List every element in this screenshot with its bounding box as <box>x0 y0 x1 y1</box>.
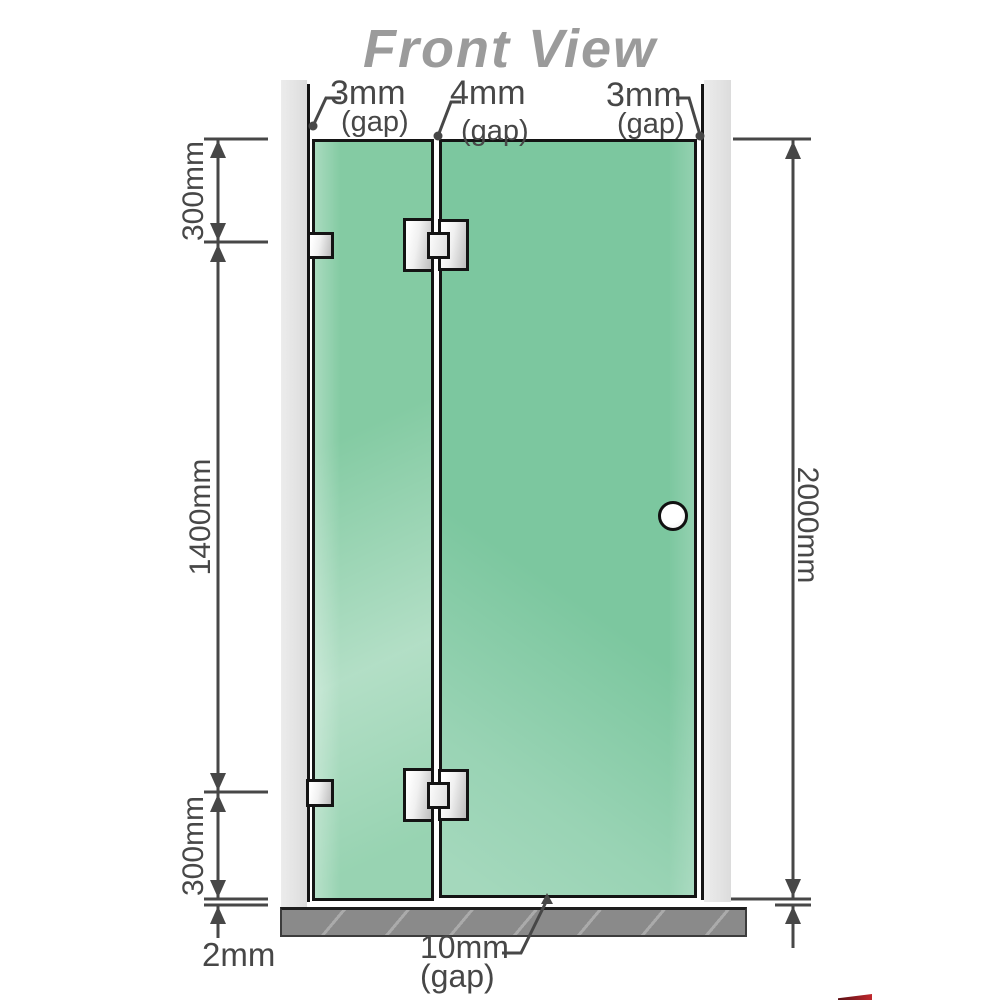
right-wall-edge-line <box>701 84 704 900</box>
arrow-up-2mm-right <box>785 906 801 924</box>
right-wall-post <box>704 80 731 902</box>
door-knob <box>658 501 688 531</box>
dim-label-2000: 2000mm <box>790 440 824 610</box>
dim-label-300-top: 300mm <box>177 121 211 261</box>
hinge-bottom-knuckle <box>427 782 450 809</box>
logo-sliver <box>838 994 872 1000</box>
dim-label-300-bottom: 300mm <box>177 776 211 916</box>
arrow-up-2mm-left <box>210 906 226 924</box>
dim-label-2mm: 2mm <box>202 936 275 974</box>
wall-bracket-top <box>307 232 334 259</box>
gap-label-left-suffix: (gap) <box>341 109 409 135</box>
arrow-up-1400 <box>210 244 226 262</box>
gap-label-right-suffix: (gap) <box>617 111 685 137</box>
dim-label-1400: 1400mm <box>184 437 218 597</box>
wall-bracket-bottom <box>306 779 334 807</box>
hinge-top-knuckle <box>427 232 450 259</box>
gap-label-left-value: 3mm <box>330 78 409 109</box>
arrow-down-300bottom <box>210 880 226 898</box>
arrow-up-2000 <box>785 141 801 159</box>
floor-bar <box>280 907 747 937</box>
gap-label-middle-value: 4mm <box>450 78 529 109</box>
gap-label-middle-suffix: (gap) <box>461 118 529 144</box>
gap-label-right: 3mm (gap) <box>606 80 685 137</box>
arrow-down-300top <box>210 223 226 241</box>
page-title: Front View <box>300 18 720 80</box>
arrow-down-1400 <box>210 773 226 791</box>
gap-label-left: 3mm (gap) <box>330 78 409 135</box>
dim-label-10mm-suffix: (gap) <box>420 962 509 991</box>
left-wall-post <box>281 80 307 907</box>
dim-label-10mm: 10mm (gap) <box>420 933 509 991</box>
front-view-diagram: Front View <box>0 0 1000 1000</box>
gap-label-right-value: 3mm <box>606 80 685 111</box>
gap-label-middle: 4mm (gap) <box>450 78 529 144</box>
arrow-up-300bottom <box>210 794 226 812</box>
arrow-down-2000 <box>785 879 801 897</box>
arrow-up-300top <box>210 140 226 158</box>
door-glass-panel <box>439 139 697 898</box>
